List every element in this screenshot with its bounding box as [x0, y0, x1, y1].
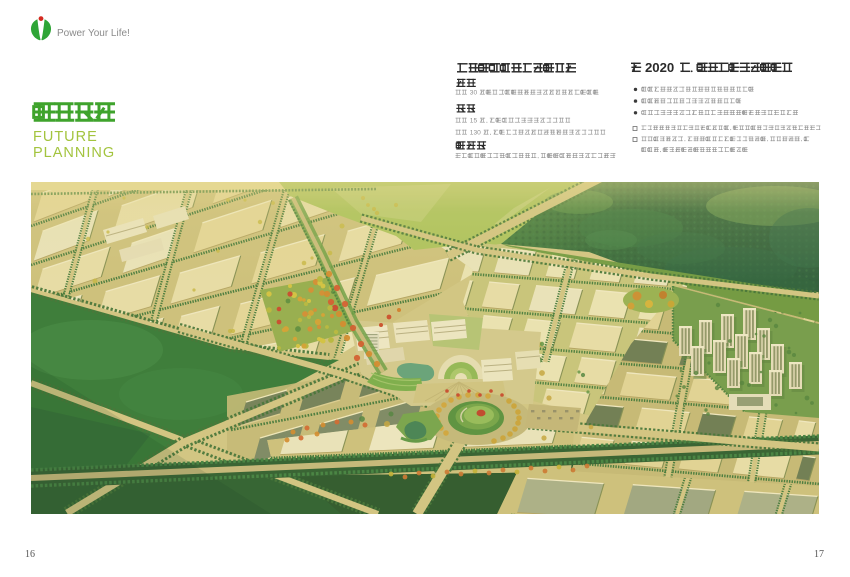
svg-text:0: 0 [667, 60, 674, 75]
svg-text:2: 2 [660, 60, 667, 75]
svg-text:0: 0 [652, 60, 659, 75]
svg-text:2: 2 [645, 60, 652, 75]
